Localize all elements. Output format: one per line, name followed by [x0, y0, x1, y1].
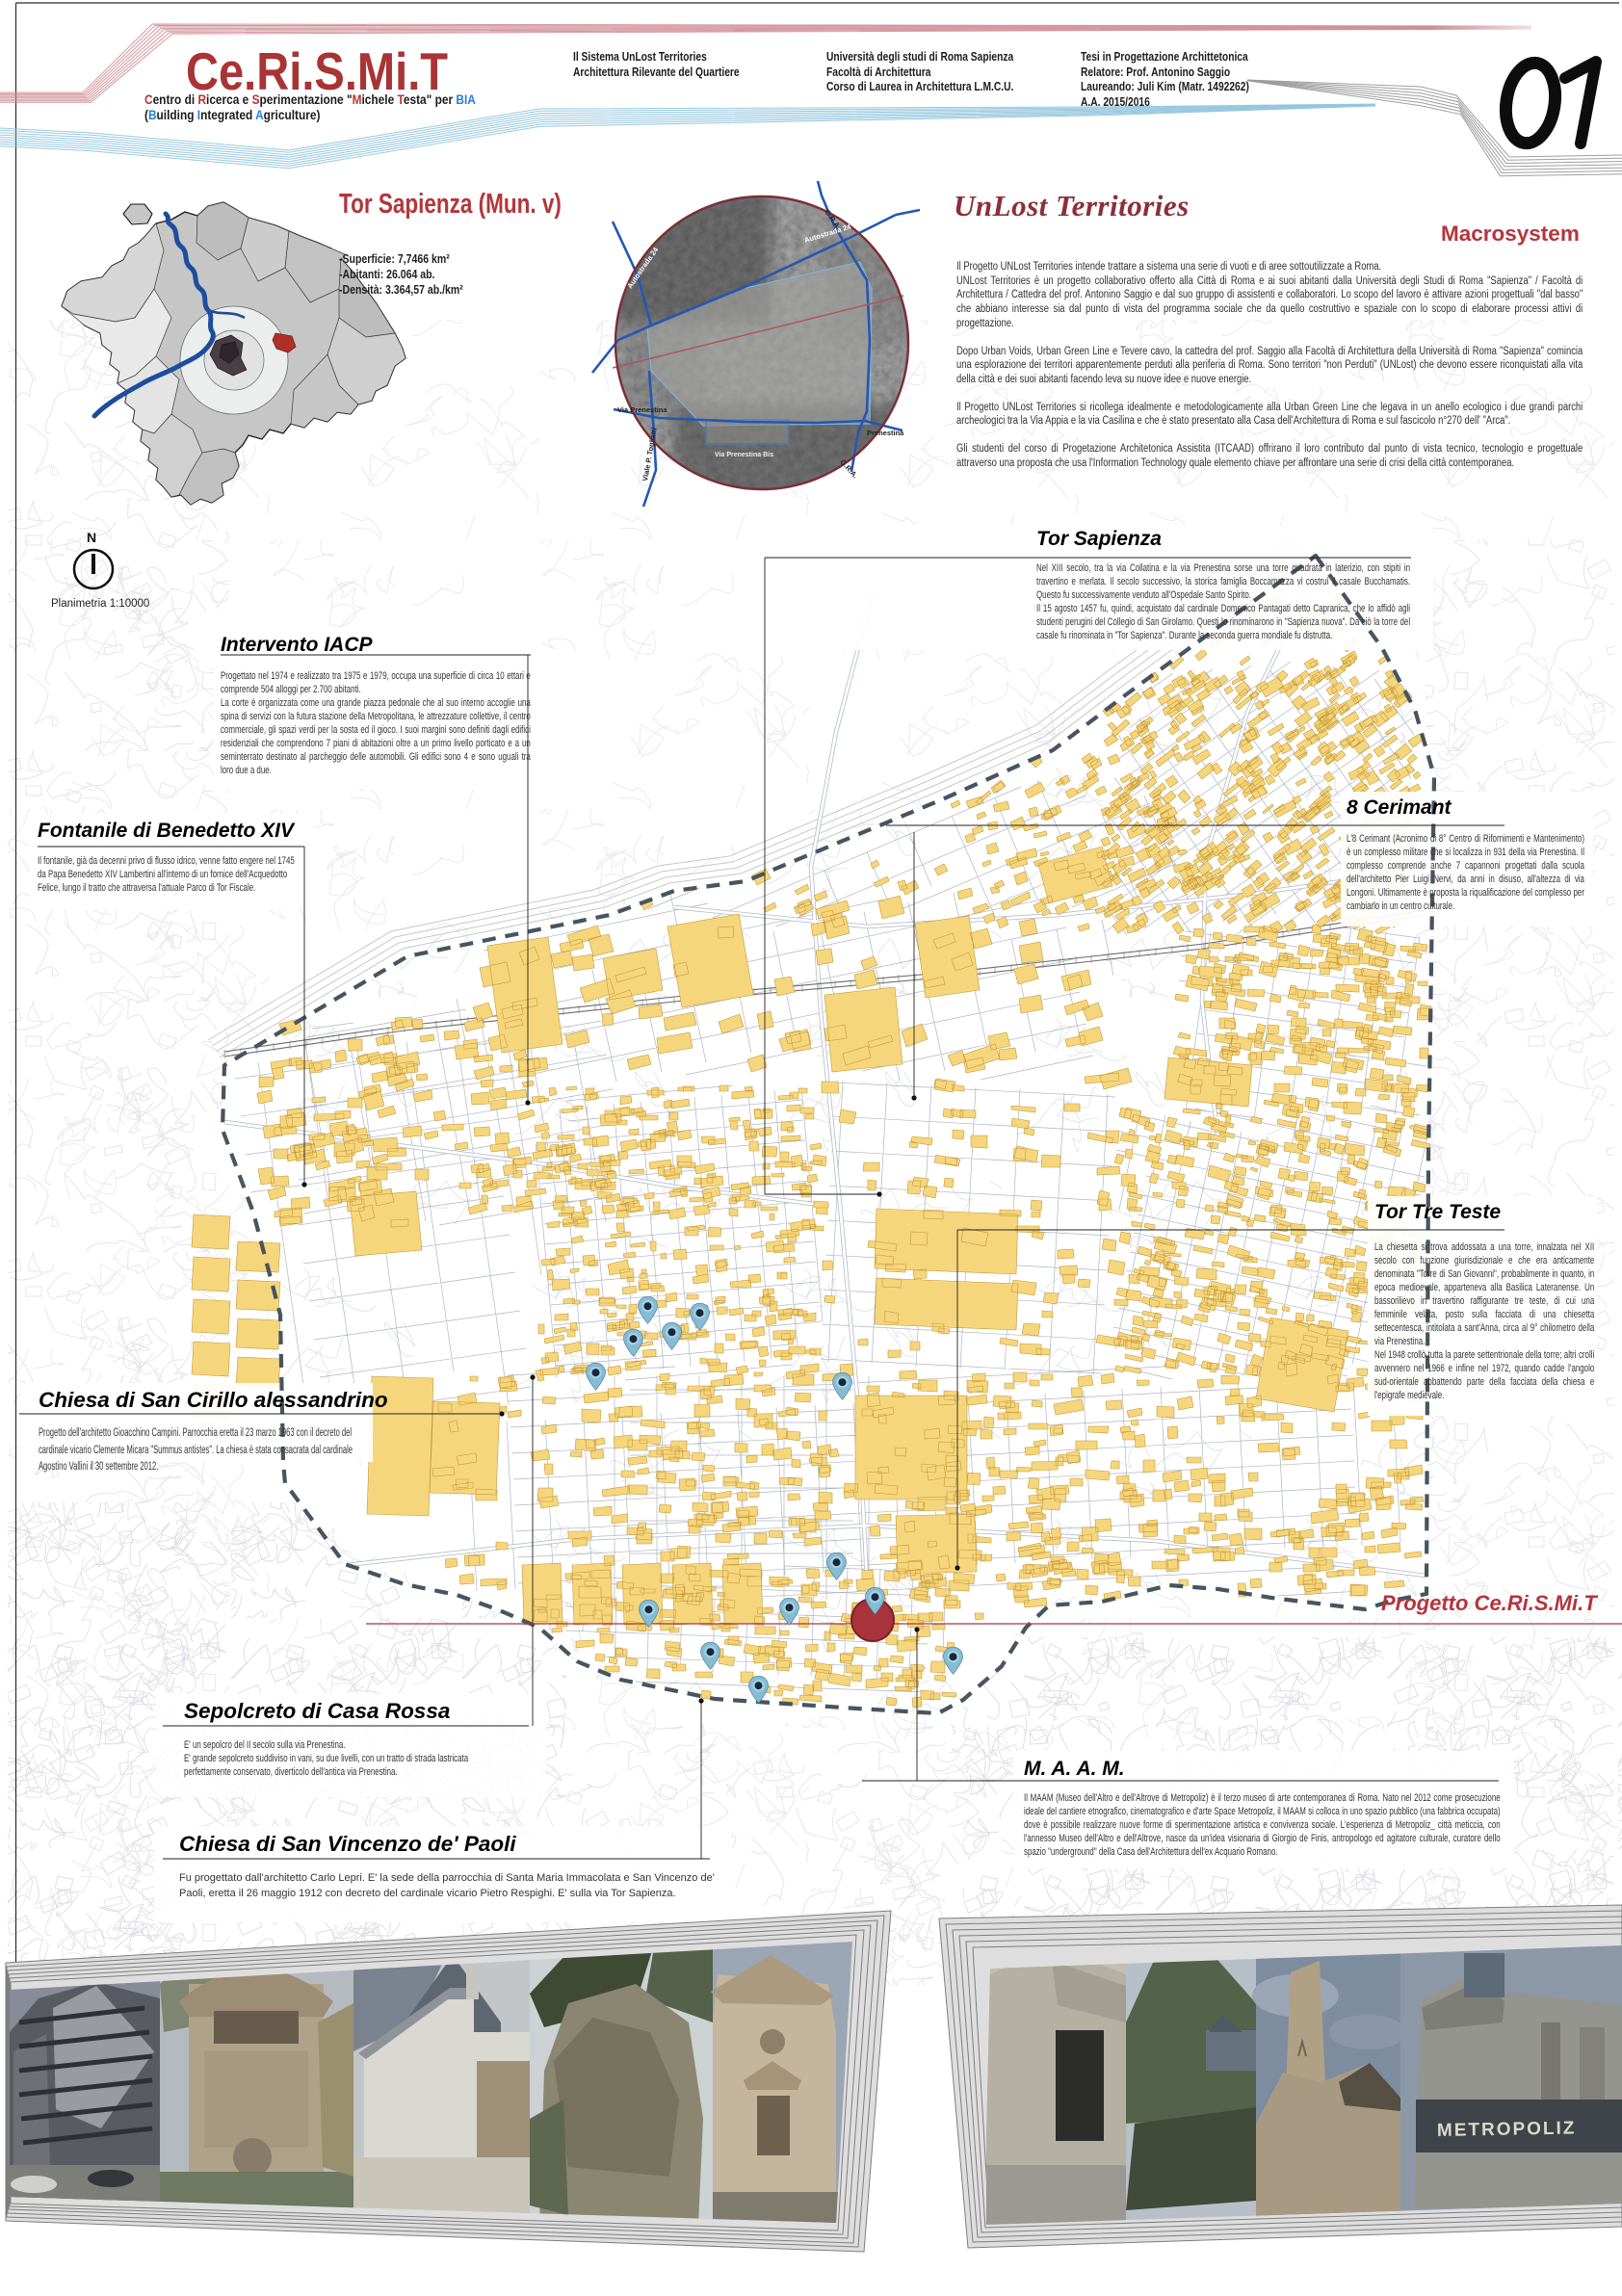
svg-text:Via Prenestina Bis: Via Prenestina Bis: [715, 452, 773, 458]
svg-text:METROPOLIZ: METROPOLIZ: [1437, 2118, 1577, 2141]
svg-text:Prenestina: Prenestina: [867, 429, 904, 437]
svg-text:Via Prenestina: Via Prenestina: [617, 405, 667, 414]
